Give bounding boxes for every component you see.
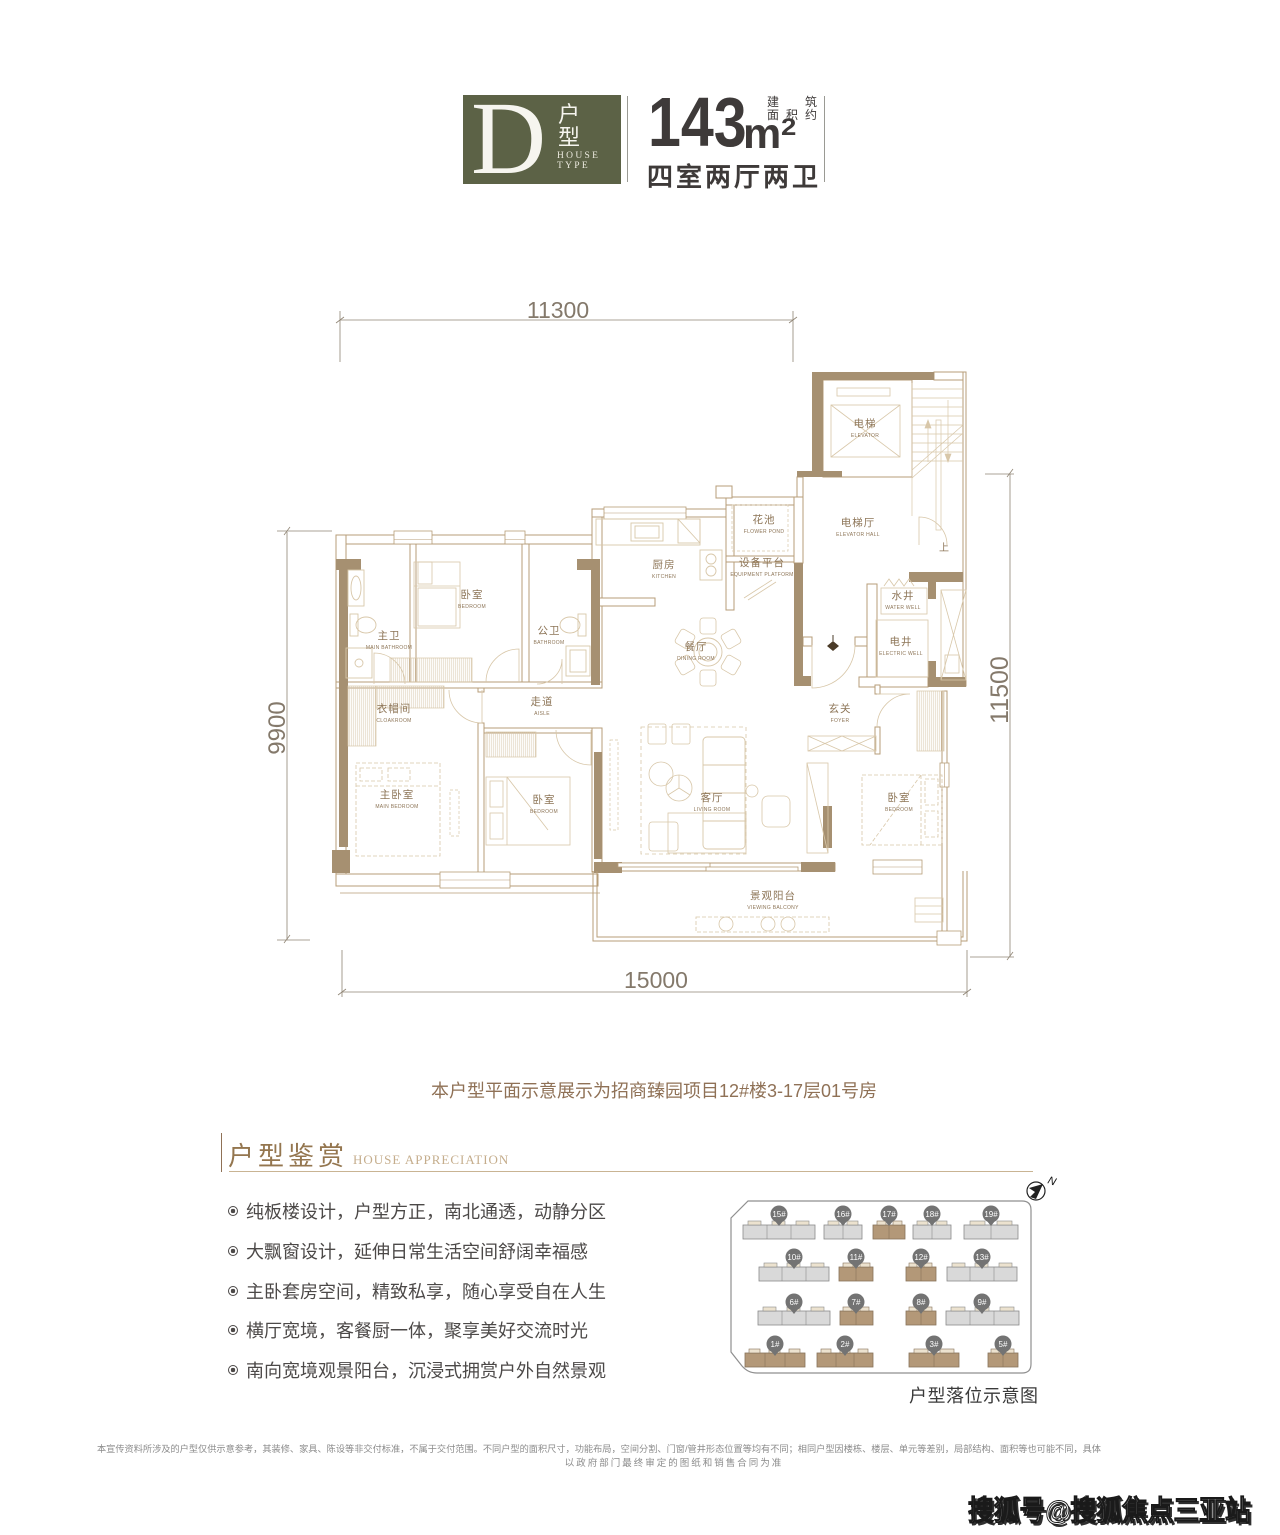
svg-text:卧室: 卧室 (461, 588, 484, 601)
svg-text:15#: 15# (772, 1210, 786, 1219)
svg-text:BEDROOM: BEDROOM (530, 809, 558, 815)
svg-text:10#: 10# (787, 1253, 801, 1262)
svg-text:MAIN BATHROOM: MAIN BATHROOM (366, 645, 412, 651)
svg-text:主卫: 主卫 (378, 630, 401, 642)
svg-text:EQUIPMENT PLATFORM: EQUIPMENT PLATFORM (730, 572, 793, 578)
svg-text:BATHROOM: BATHROOM (534, 640, 565, 646)
svg-text:水井: 水井 (892, 589, 915, 602)
svg-text:9#: 9# (978, 1298, 987, 1307)
svg-text:ELECTRIC WELL: ELECTRIC WELL (879, 651, 923, 657)
svg-text:公卫: 公卫 (538, 625, 561, 637)
svg-text:走道: 走道 (531, 695, 554, 708)
svg-text:MAIN BEDROOM: MAIN BEDROOM (375, 804, 418, 810)
svg-text:花池: 花池 (753, 513, 776, 526)
svg-text:厨房: 厨房 (653, 558, 676, 571)
svg-text:衣帽间: 衣帽间 (377, 702, 412, 715)
svg-text:ELEVATOR: ELEVATOR (851, 433, 879, 439)
svg-text:上: 上 (939, 542, 949, 554)
svg-text:电井: 电井 (890, 635, 913, 648)
svg-text:客厅: 客厅 (701, 791, 724, 804)
svg-text:电梯: 电梯 (854, 417, 877, 430)
svg-text:BEDROOM: BEDROOM (885, 807, 913, 813)
svg-text:VIEWING BALCONY: VIEWING BALCONY (747, 905, 799, 911)
svg-text:餐厅: 餐厅 (685, 640, 708, 653)
svg-text:LIVING ROOM: LIVING ROOM (694, 807, 731, 813)
svg-text:18#: 18# (925, 1210, 939, 1219)
svg-text:15000: 15000 (624, 967, 688, 993)
svg-text:2#: 2# (841, 1340, 850, 1349)
svg-text:KITCHEN: KITCHEN (652, 574, 676, 580)
svg-text:WATER WELL: WATER WELL (885, 605, 921, 611)
svg-text:景观阳台: 景观阳台 (750, 889, 796, 902)
svg-text:FOYER: FOYER (831, 718, 850, 724)
svg-text:19#: 19# (984, 1210, 998, 1219)
svg-text:12#: 12# (914, 1253, 928, 1262)
svg-text:11500: 11500 (986, 656, 1014, 724)
svg-text:设备平台: 设备平台 (739, 556, 785, 569)
svg-text:16#: 16# (836, 1210, 850, 1219)
svg-text:9900: 9900 (264, 701, 291, 754)
svg-text:DINING ROOM: DINING ROOM (677, 656, 715, 662)
svg-text:主卧室: 主卧室 (380, 788, 415, 801)
svg-text:17#: 17# (882, 1210, 896, 1219)
svg-text:6#: 6# (790, 1298, 799, 1307)
svg-text:11300: 11300 (527, 297, 589, 323)
svg-text:ELEVATOR HALL: ELEVATOR HALL (836, 532, 880, 538)
svg-text:CLOAKROOM: CLOAKROOM (376, 718, 411, 724)
svg-text:玄关: 玄关 (829, 702, 852, 715)
svg-text:11#: 11# (850, 1253, 863, 1262)
svg-text:卧室: 卧室 (533, 793, 556, 806)
svg-text:7#: 7# (852, 1298, 861, 1307)
svg-text:电梯厅: 电梯厅 (841, 516, 876, 529)
svg-text:5#: 5# (999, 1340, 1008, 1349)
svg-text:13#: 13# (975, 1253, 989, 1262)
svg-text:FLOWER POND: FLOWER POND (744, 529, 785, 535)
svg-text:AISLE: AISLE (534, 711, 550, 717)
svg-text:1#: 1# (771, 1340, 780, 1349)
svg-text:8#: 8# (917, 1298, 926, 1307)
svg-text:BEDROOM: BEDROOM (458, 604, 486, 610)
svg-text:N: N (1046, 1175, 1058, 1189)
svg-text:卧室: 卧室 (888, 791, 911, 804)
svg-text:3#: 3# (930, 1340, 939, 1349)
